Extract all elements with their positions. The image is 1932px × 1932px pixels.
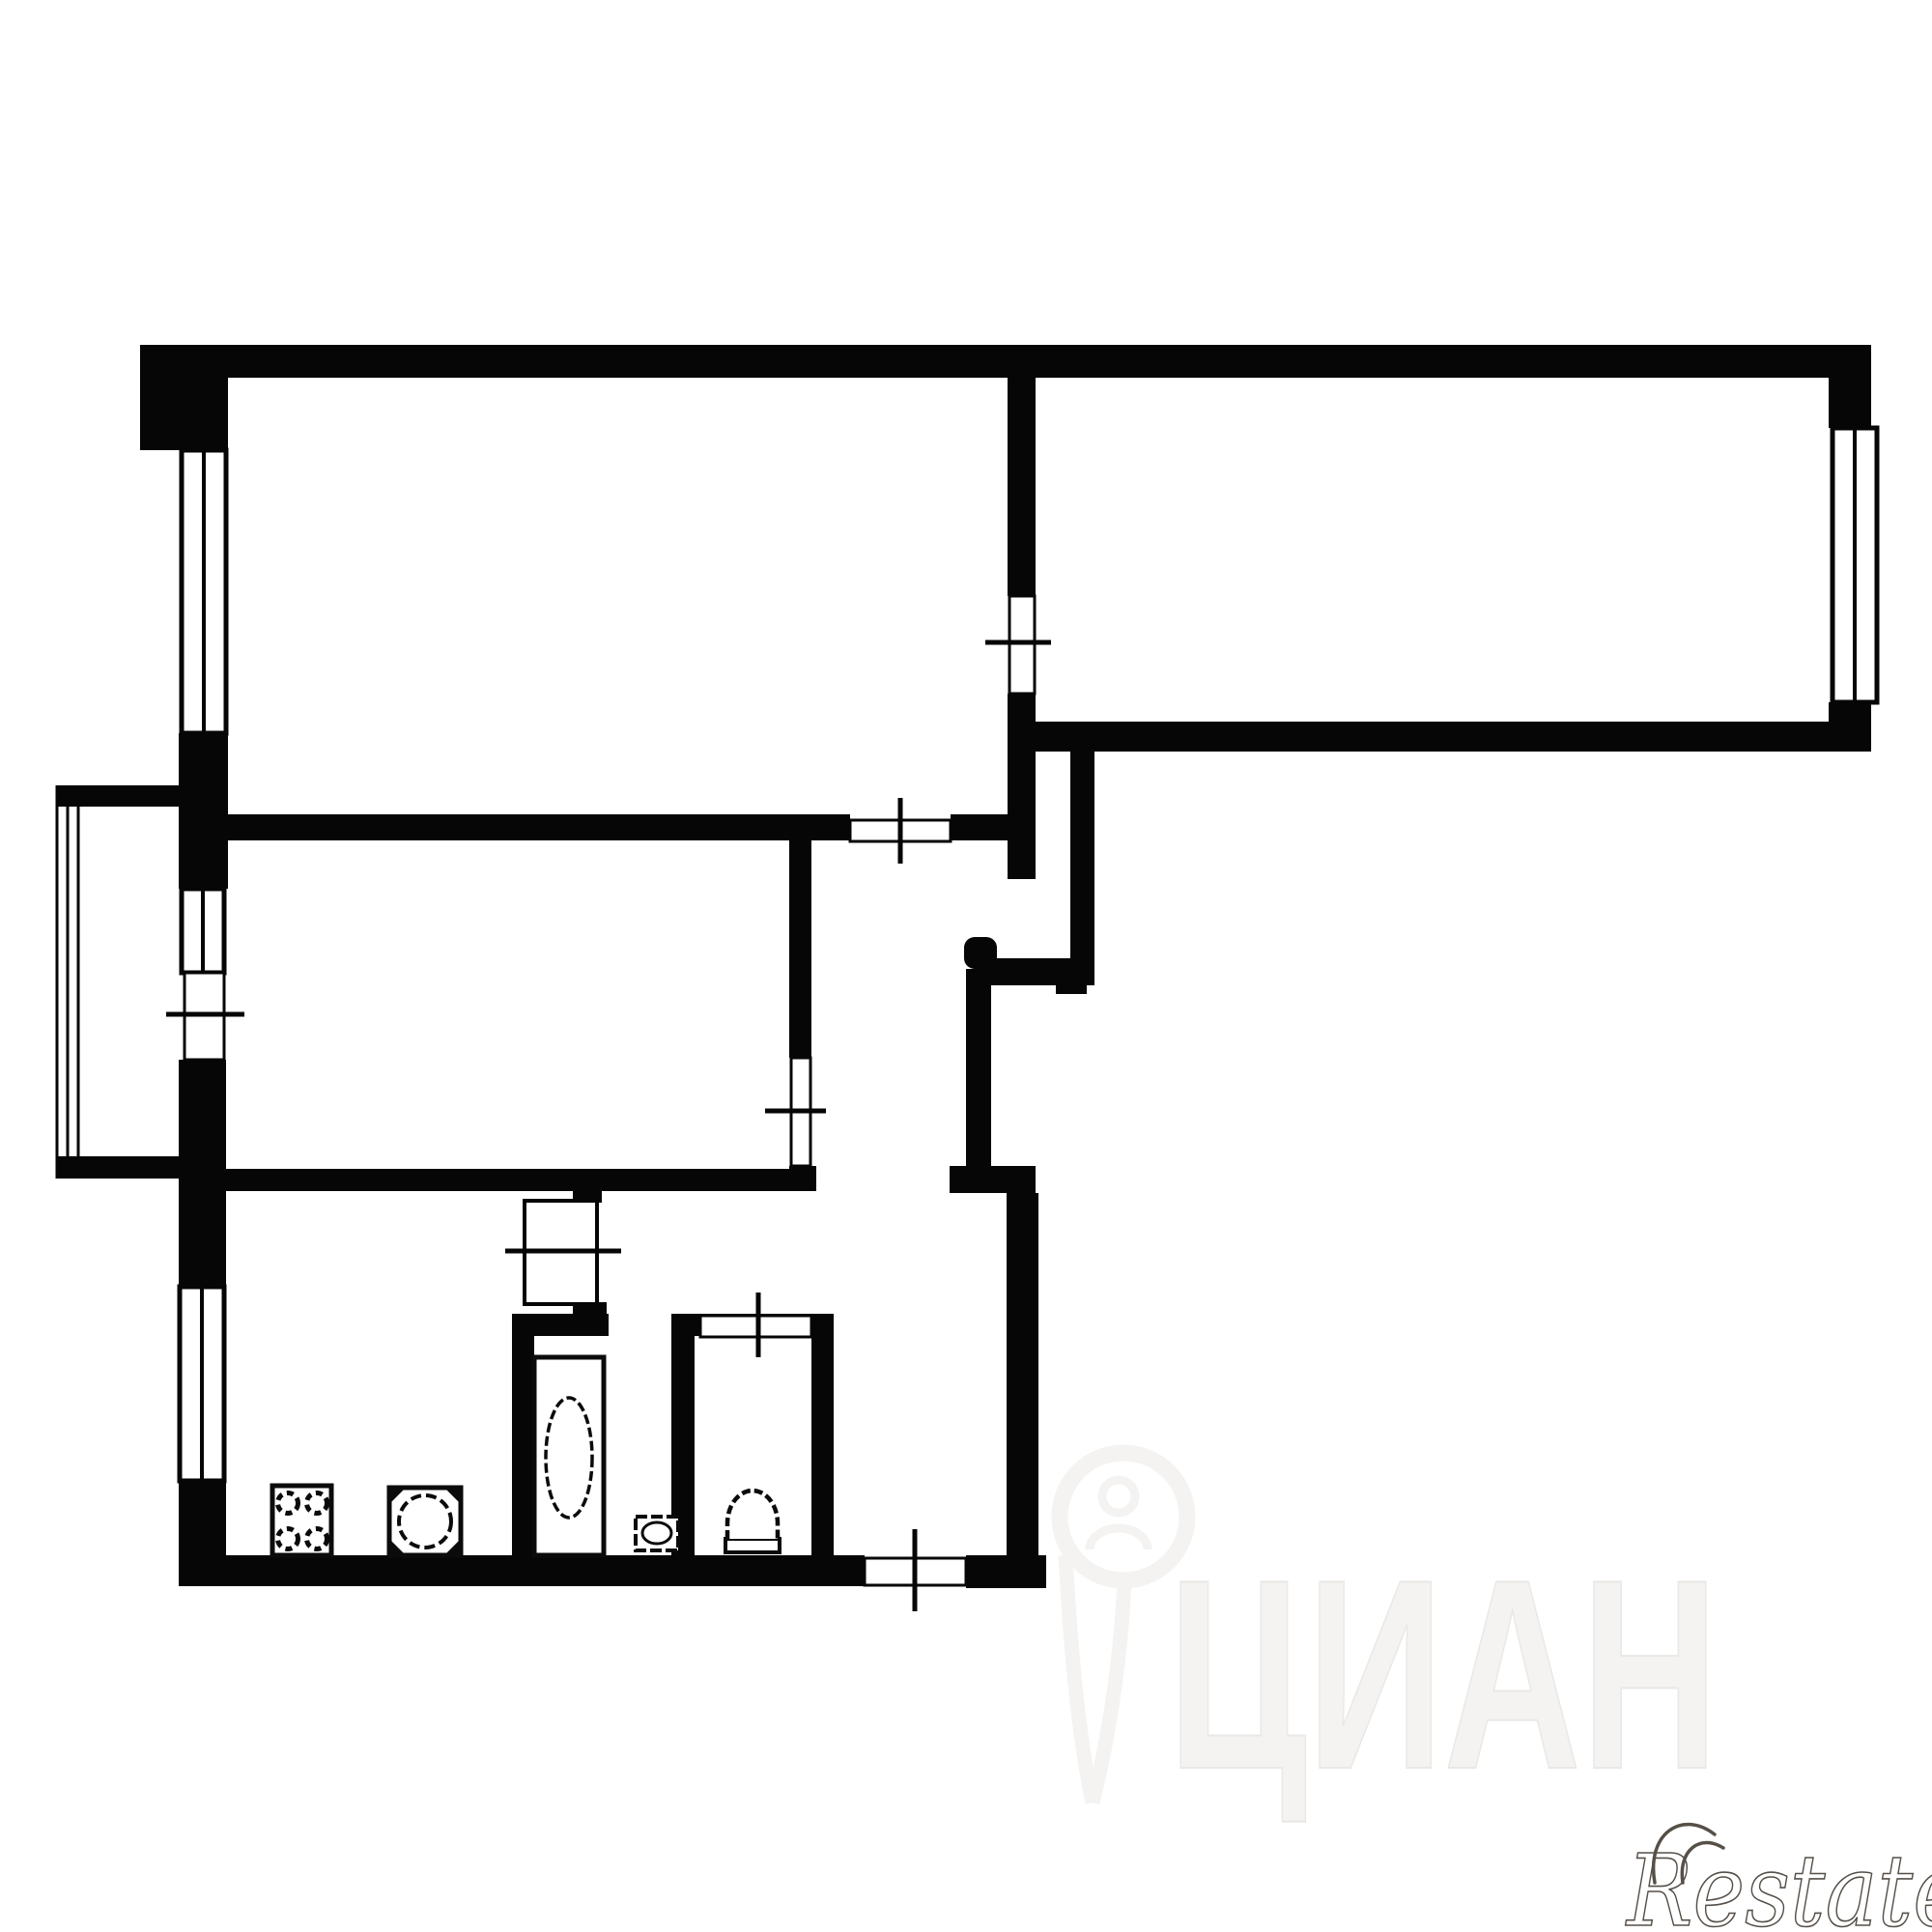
wall-room1-bottom-right [951, 814, 1008, 840]
restate-watermark-text: Restate [1625, 1833, 1932, 1932]
wall-bath-top [512, 1314, 609, 1336]
floor-plan-drawing: ЦИАН Restate [0, 0, 1932, 1932]
window-room1-left [182, 450, 226, 733]
wall-hall-horizontal [987, 958, 1094, 985]
door-pivot-bump [964, 937, 997, 969]
wall-hall-step [1056, 985, 1087, 994]
cian-pin-tail-left [1065, 1555, 1093, 1803]
wall-partition-toprooms-upper [1008, 345, 1036, 596]
wall-hall-left-vertical [966, 969, 991, 1166]
bathtub-icon [534, 1357, 604, 1555]
wall-left-between-windows [179, 733, 228, 889]
wall-mid-partition-stub [789, 1166, 816, 1191]
wall-bottom-main [179, 1555, 865, 1586]
walls [140, 345, 1871, 1588]
wall-top-outer [140, 345, 1871, 378]
balcony-cap-top [56, 785, 179, 807]
wall-corridor-right-vertical [1007, 1193, 1038, 1557]
cian-watermark-text: ЦИАН [1168, 1524, 1719, 1826]
wall-partition-toprooms-lower [1008, 694, 1036, 879]
wall-room2-bottom [1036, 722, 1871, 752]
wall-room1-bottom-left [179, 814, 850, 840]
wall-midroom-bottom [179, 1169, 816, 1191]
wall-right-above-window [1829, 345, 1871, 428]
balcony-cap-bottom [56, 1156, 179, 1179]
cian-person-head [1102, 1480, 1135, 1513]
toilet-icon [725, 1491, 780, 1552]
kitchen-sink-icon [389, 1488, 461, 1555]
watermark-restate: Restate [1625, 1825, 1932, 1932]
stove-icon [272, 1486, 331, 1555]
floor-plan-page: ЦИАН Restate [0, 0, 1932, 1932]
door-toilet [700, 1293, 811, 1357]
wall-mid-partition [789, 840, 811, 1058]
window-room2-right [1833, 428, 1877, 702]
wall-outer-step-vertical [1070, 752, 1094, 985]
cian-pin-tail-right [1093, 1582, 1124, 1803]
door-balcony [166, 973, 244, 1060]
toilet-bowl [727, 1491, 778, 1539]
window-kitchen-left [180, 1287, 224, 1481]
washbasin-icon [636, 1517, 678, 1550]
wall-wc-right [811, 1314, 834, 1555]
door-entrance [865, 1529, 966, 1611]
wall-hall-block [950, 1166, 1036, 1193]
doors [166, 596, 1051, 1611]
toilet-tank [725, 1539, 780, 1552]
window-midroom-left [182, 889, 224, 973]
door-room1 [850, 798, 951, 864]
door-bathroom [505, 1201, 621, 1304]
door-midroom [765, 1058, 826, 1166]
wall-bath-left [512, 1336, 534, 1555]
watermark-cian: ЦИАН [1060, 1453, 1719, 1826]
cian-person-shoulders [1090, 1528, 1148, 1549]
balcony [56, 785, 179, 1179]
wall-topleft-corner [140, 345, 228, 450]
door-between-top-rooms [985, 596, 1051, 694]
wall-bottom-right [966, 1555, 1046, 1588]
